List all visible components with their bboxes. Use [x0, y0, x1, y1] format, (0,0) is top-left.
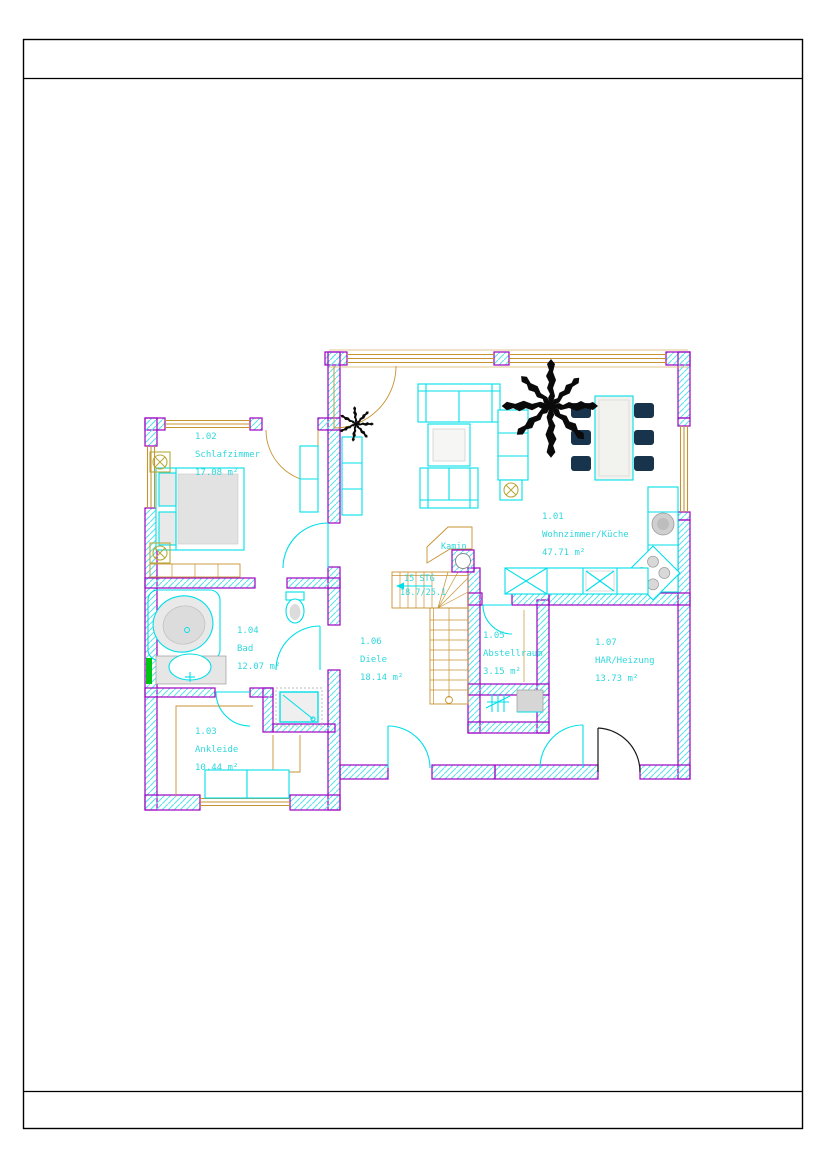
- svg-text:Abstellraum: Abstellraum: [483, 649, 543, 659]
- room-label-ankleide: 1.03 Ankleide 10.44 m²: [195, 727, 238, 773]
- svg-text:1.02: 1.02: [195, 432, 217, 442]
- svg-text:Wohnzimmer/Küche: Wohnzimmer/Küche: [542, 530, 629, 540]
- bath-door: [276, 626, 320, 670]
- terrace-door: [334, 366, 396, 428]
- shower: [276, 688, 322, 726]
- dressing-bench: [205, 770, 289, 798]
- fireplace: Kamin: [427, 527, 474, 572]
- svg-text:1.03: 1.03: [195, 727, 217, 737]
- svg-text:3.15 m²: 3.15 m²: [483, 667, 521, 677]
- room-label-bad: 1.04 Bad 12.07 m²: [237, 626, 280, 672]
- stairs: 15 STG 18.7/25.1: [392, 572, 468, 704]
- svg-text:Schlafzimmer: Schlafzimmer: [195, 450, 261, 460]
- room-label-diele: 1.06 Diele 18.14 m²: [360, 637, 403, 683]
- svg-text:HAR/Heizung: HAR/Heizung: [595, 656, 655, 666]
- storage-door: [483, 605, 512, 634]
- washing-machine: [517, 690, 543, 712]
- stairs-dimensions-label: 18.7/25.1: [400, 588, 446, 598]
- bathroom-radiator: [146, 658, 152, 684]
- bath-dressing-door: [216, 692, 250, 726]
- window-bedroom-left: [148, 446, 155, 508]
- double-bed: [156, 468, 244, 550]
- sideboard: [498, 410, 528, 480]
- bedroom-sideboard: [150, 564, 240, 577]
- svg-text:Diele: Diele: [360, 655, 387, 665]
- svg-text:Ankleide: Ankleide: [195, 745, 238, 755]
- svg-text:1.07: 1.07: [595, 638, 617, 648]
- window-bedroom-top: [165, 421, 250, 428]
- svg-text:17.08 m²: 17.08 m²: [195, 468, 238, 478]
- svg-text:13.73 m²: 13.73 m²: [595, 674, 638, 684]
- water-connection: [486, 694, 510, 712]
- svg-text:12.07 m²: 12.07 m²: [237, 662, 280, 672]
- room-label-abstellraum: 1.05 Abstellraum 3.15 m²: [483, 631, 543, 677]
- window-living-top-left: [347, 355, 494, 363]
- hall-corridor-door: [388, 726, 430, 768]
- svg-text:1.05: 1.05: [483, 631, 505, 641]
- toilet: [286, 592, 304, 623]
- room-label-schlafzimmer: 1.02 Schlafzimmer 17.08 m²: [195, 432, 261, 478]
- window-dressing-bottom: [200, 799, 290, 806]
- fireplace-label: Kamin: [441, 542, 467, 552]
- bathtub: [147, 589, 220, 660]
- window-living-top-right: [509, 355, 666, 363]
- room-label-har-heizung: 1.07 HAR/Heizung 13.73 m²: [595, 638, 655, 684]
- floor-plan-canvas: 15 STG 18.7/25.1 Kamin: [0, 0, 826, 1169]
- living-lamp: [500, 480, 522, 500]
- window-living-right: [681, 426, 688, 512]
- svg-text:47.71 m²: 47.71 m²: [542, 548, 585, 558]
- stairs-steps-label: 15 STG: [404, 574, 435, 584]
- entrance-door: [598, 728, 640, 772]
- drawing-sheet: 15 STG 18.7/25.1 Kamin: [0, 0, 826, 1169]
- washbasin: [156, 654, 226, 684]
- svg-text:1.04: 1.04: [237, 626, 259, 636]
- dining-table: [595, 396, 633, 480]
- svg-text:Bad: Bad: [237, 644, 253, 654]
- floor-plan: 15 STG 18.7/25.1 Kamin: [145, 350, 690, 810]
- hall-cabinet: [342, 437, 362, 515]
- hall-bedroom-door: [283, 523, 328, 568]
- svg-text:10.44 m²: 10.44 m²: [195, 763, 238, 773]
- svg-text:1.01: 1.01: [542, 512, 564, 522]
- sofa-bottom: [420, 468, 478, 508]
- coffee-table: [428, 424, 470, 466]
- kitchen-counter-bottom: [505, 568, 648, 594]
- svg-text:1.06: 1.06: [360, 637, 382, 647]
- bedroom-wardrobe: [300, 446, 318, 512]
- svg-text:18.14 m²: 18.14 m²: [360, 673, 403, 683]
- room-label-wohnzimmer-kueche: 1.01 Wohnzimmer/Küche 47.71 m²: [542, 512, 629, 558]
- sofa-top: [418, 384, 500, 422]
